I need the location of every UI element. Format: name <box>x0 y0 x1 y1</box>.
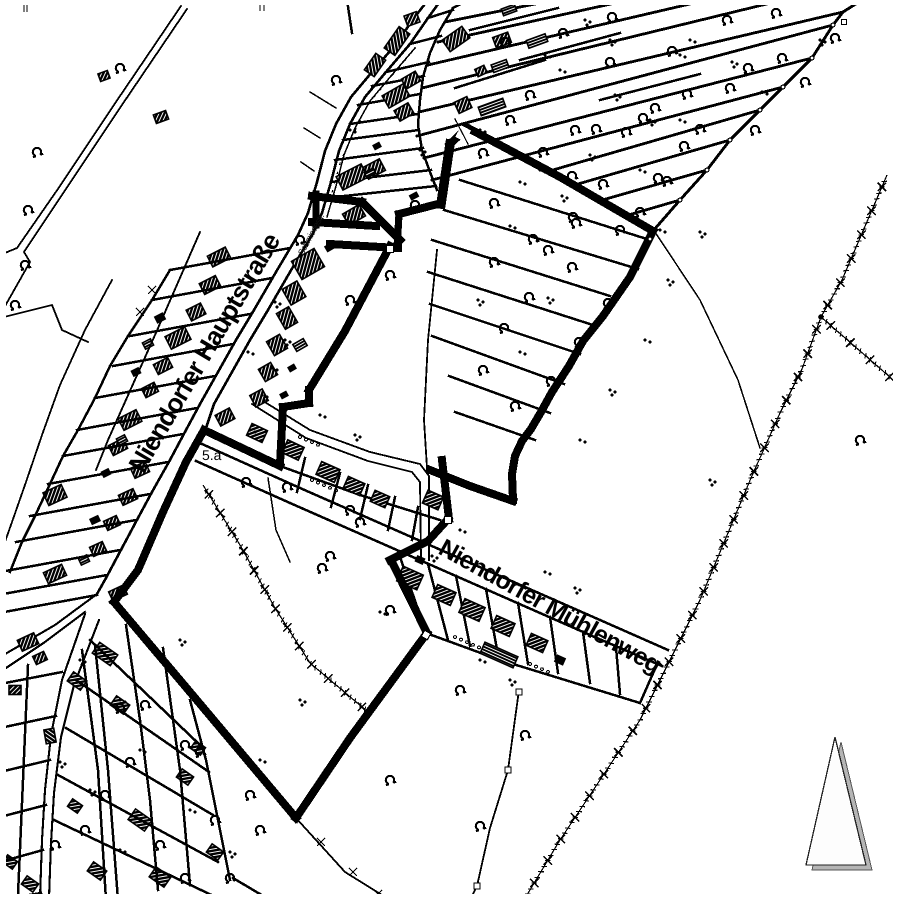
svg-text:5.a: 5.a <box>202 447 222 463</box>
